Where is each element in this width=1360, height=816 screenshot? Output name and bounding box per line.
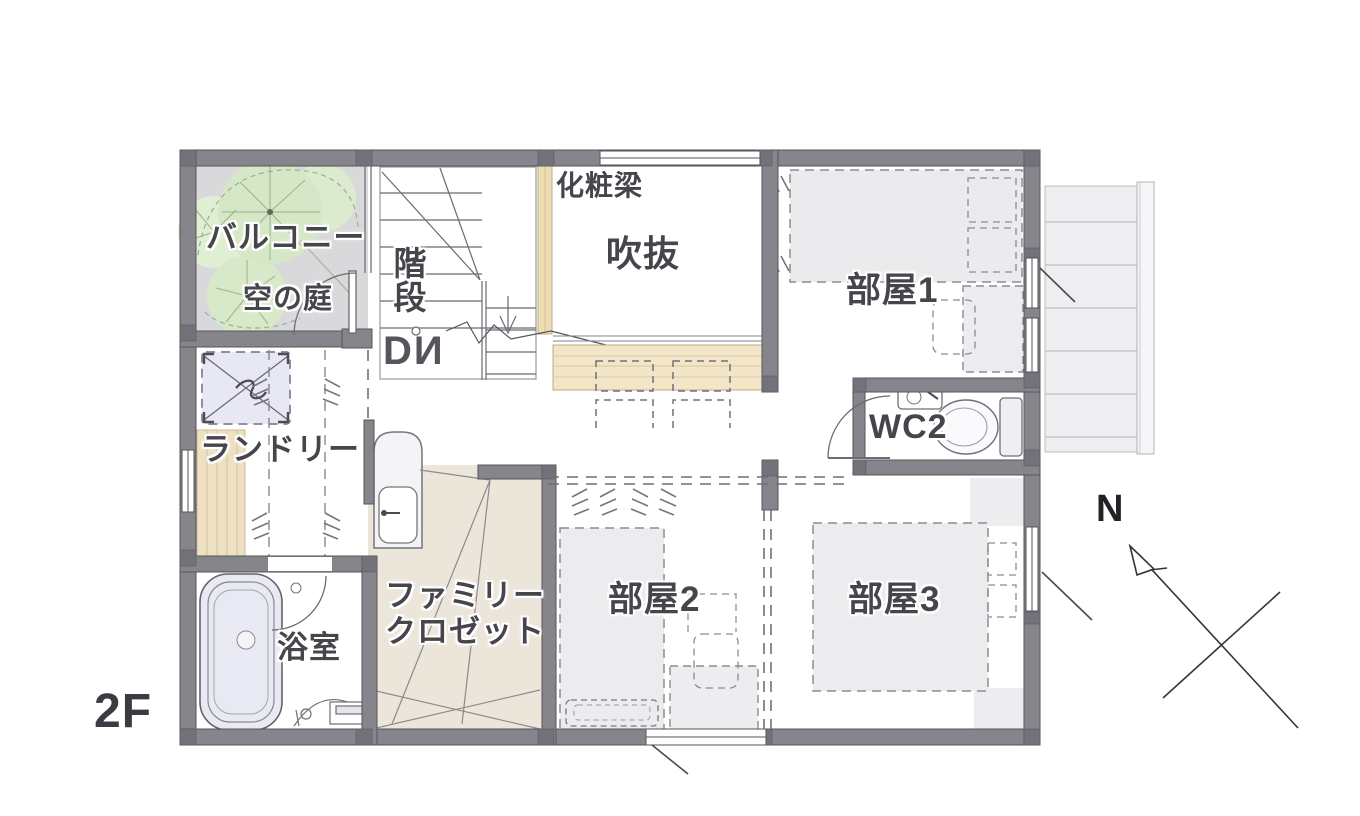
family-closet-label-line2: クロゼット: [385, 614, 545, 649]
room1-desk: [963, 286, 1023, 372]
hall-vanity: [374, 432, 422, 548]
balcony-garden-label: 空の庭: [243, 283, 333, 316]
room2-desk: [670, 666, 758, 732]
shower-fixture: [294, 700, 368, 726]
bathtub: [200, 574, 282, 730]
compass: [1130, 546, 1298, 728]
room2-room3-partition: [764, 510, 771, 729]
hall-room-partition: [548, 477, 850, 484]
stairs-break-line: [446, 322, 610, 346]
floor-label: 2F: [94, 684, 152, 739]
bathroom-label: 浴室: [277, 630, 341, 666]
stairs-down-label: DИ: [383, 328, 445, 374]
compass-north-label: N: [1096, 488, 1124, 532]
void-counter: [553, 336, 762, 428]
floor-plan-page: バルコニー 空の庭 階段 DИ 化粧梁 吹抜 部屋1 WC2 ランドリー 浴室 …: [0, 0, 1360, 816]
stairs-label: 階段: [388, 246, 426, 314]
lower-roof: [1045, 182, 1154, 454]
laundry-label: ランドリー: [200, 432, 360, 468]
family-closet-label: ファミリー クロゼット: [385, 578, 545, 649]
floor-plan-drawing: [0, 0, 1360, 816]
void-beam-label: 化粧梁: [556, 170, 643, 202]
room2-window-opening: [652, 745, 688, 774]
room2-label: 部屋2: [608, 580, 700, 620]
room3-label: 部屋3: [848, 580, 940, 620]
room2-bed: [560, 528, 664, 734]
family-closet-label-line1: ファミリー: [385, 578, 545, 613]
room1-label: 部屋1: [846, 271, 938, 311]
wc-label: WC2: [869, 408, 948, 447]
room3-window-opening: [1042, 572, 1092, 620]
balcony-label: バルコニー: [206, 220, 365, 256]
void-label: 吹抜: [606, 233, 680, 274]
room1-bed: [790, 170, 1022, 282]
